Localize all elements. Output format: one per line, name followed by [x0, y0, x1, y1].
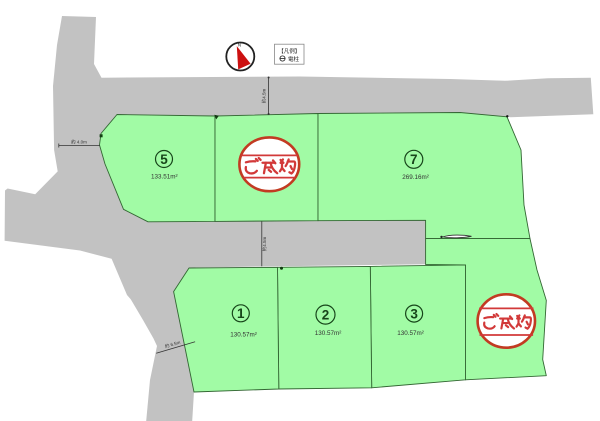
svg-text:電柱: 電柱: [288, 55, 300, 63]
svg-text:7: 7: [410, 152, 418, 167]
svg-text:約4.5m: 約4.5m: [261, 89, 268, 104]
svg-text:N: N: [238, 43, 241, 48]
svg-text:5: 5: [160, 152, 168, 167]
svg-text:約4.5m: 約4.5m: [261, 237, 268, 252]
svg-text:130.57m²: 130.57m²: [397, 330, 424, 337]
svg-text:130.57m²: 130.57m²: [315, 330, 342, 337]
svg-text:130.57m²: 130.57m²: [230, 331, 257, 338]
svg-text:【凡例】: 【凡例】: [278, 47, 300, 55]
svg-text:約 4.0m: 約 4.0m: [71, 139, 87, 146]
svg-text:2: 2: [322, 307, 330, 322]
svg-text:1: 1: [237, 306, 245, 321]
svg-text:269.16m²: 269.16m²: [402, 174, 429, 181]
svg-text:3: 3: [410, 306, 418, 321]
svg-text:133.51m²: 133.51m²: [151, 174, 178, 181]
